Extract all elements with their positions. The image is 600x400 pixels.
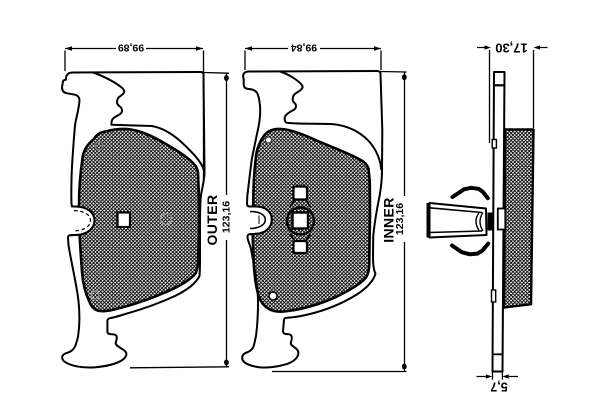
svg-text:17,30: 17,30	[495, 41, 528, 56]
svg-text:OUTER: OUTER	[204, 195, 220, 246]
svg-text:123,16: 123,16	[221, 201, 233, 233]
svg-text:INNER: INNER	[381, 197, 397, 243]
svg-text:5,7: 5,7	[490, 379, 507, 393]
svg-text:99,84: 99,84	[291, 41, 317, 53]
svg-text:99,89: 99,89	[118, 41, 144, 53]
